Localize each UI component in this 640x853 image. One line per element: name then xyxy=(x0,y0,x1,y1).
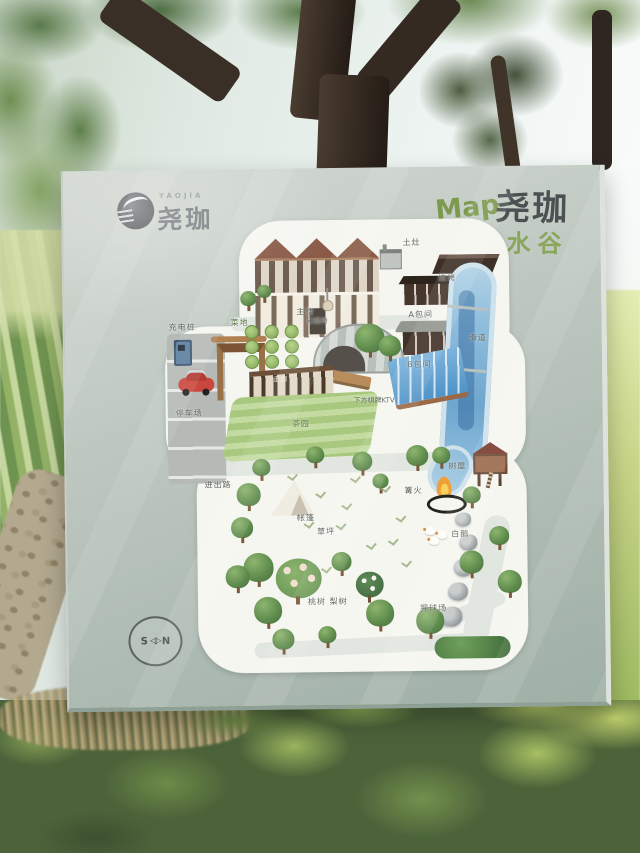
lodge-roof xyxy=(296,238,338,259)
tree-icon xyxy=(498,570,522,593)
label-charging-pile: 充电桩 xyxy=(169,322,196,333)
label-stove: 土灶 xyxy=(403,237,421,248)
goose-icon xyxy=(429,537,439,545)
photo-of-map-sign: YAOJIA 尧珈 Map of 尧珈 清水谷 S ◁▷ N xyxy=(0,0,640,853)
tree-icon xyxy=(331,552,351,571)
cabbage-icon xyxy=(285,324,299,338)
tree-icon xyxy=(352,452,372,471)
label-tea-garden: 茶园 xyxy=(292,418,310,429)
label-pool-ktv: 下方棋牌KTV xyxy=(353,395,394,406)
hand-drawn-map: 土灶 烧烤 A包间 B包间 滑道 主楼 幻摇椅 充电桩 停车场 菜地 走廊 下方… xyxy=(163,218,530,674)
tree-icon xyxy=(257,285,271,298)
cabin-a-icon xyxy=(404,283,452,306)
ape-stone-icon xyxy=(455,512,471,526)
label-corridor: 走廊 xyxy=(273,375,287,385)
peach-tree-trunk xyxy=(296,596,300,604)
tree-icon xyxy=(406,445,428,466)
map-sign-board: YAOJIA 尧珈 Map of 尧珈 清水谷 S ◁▷ N xyxy=(61,165,612,713)
tree-icon xyxy=(463,486,481,503)
label-bonfire: 篝火 xyxy=(405,485,423,496)
ape-stone-icon xyxy=(448,582,468,600)
tree-icon xyxy=(306,446,324,463)
label-bbq: 烧烤 xyxy=(438,273,456,284)
tree-icon xyxy=(318,626,336,643)
cabbage-icon xyxy=(245,340,259,354)
tree-icon xyxy=(252,459,270,476)
label-tent: 帐篷 xyxy=(297,512,315,523)
tree-icon xyxy=(226,565,250,588)
cabbage-icon xyxy=(265,340,279,354)
vegetable-garden-plots xyxy=(245,324,304,369)
label-ape-playground: 猩球场 xyxy=(420,603,447,614)
tent-icon xyxy=(271,480,315,516)
compass-arrow-icon: ◁▷ xyxy=(150,636,160,646)
compass-south-label: S xyxy=(141,636,148,647)
bush-icon xyxy=(434,636,510,659)
tree-icon xyxy=(379,335,401,356)
label-room-b: B包间 xyxy=(407,359,432,370)
tree-icon xyxy=(254,597,282,624)
lodge-roof xyxy=(337,237,379,258)
label-treehouse: 树屋 xyxy=(448,460,466,471)
label-swing-chair: 幻摇椅 xyxy=(307,316,328,326)
earth-stove-icon xyxy=(380,249,402,269)
ev-charger-icon xyxy=(174,340,192,366)
tree-icon xyxy=(366,599,394,626)
car-icon xyxy=(178,377,214,391)
label-parking-lot: 停车场 xyxy=(176,408,203,419)
label-lawn: 草坪 xyxy=(317,526,335,537)
tree-icon xyxy=(231,517,253,538)
label-veg-garden: 菜地 xyxy=(231,317,249,328)
goose-icon xyxy=(425,527,435,535)
label-slide: 滑道 xyxy=(469,332,487,343)
cabbage-icon xyxy=(265,355,279,369)
tree-icon xyxy=(489,526,509,545)
label-geese: 白鹅 xyxy=(451,528,469,539)
swing-chair-seat xyxy=(322,300,333,311)
lodge-upper-floor xyxy=(255,257,379,295)
tree-icon xyxy=(237,483,261,506)
goose-icon xyxy=(437,531,447,539)
tree-right-foliage xyxy=(420,30,570,180)
tree-icon xyxy=(459,550,483,573)
cabbage-icon xyxy=(285,354,299,368)
cabbage-icon xyxy=(245,355,259,369)
label-entry-path: 进出路 xyxy=(204,479,231,490)
tree-icon xyxy=(272,629,294,650)
treehouse-icon xyxy=(472,442,513,488)
tree-icon xyxy=(240,291,256,306)
cabbage-icon xyxy=(285,339,299,353)
label-room-a: A包间 xyxy=(408,309,433,320)
tree-trunk-far-right xyxy=(592,10,612,170)
label-orchard: 桃树 梨树 xyxy=(308,596,348,607)
yaojia-logo-icon xyxy=(117,192,154,229)
cabbage-icon xyxy=(265,325,279,339)
lodge-roof xyxy=(255,238,297,259)
